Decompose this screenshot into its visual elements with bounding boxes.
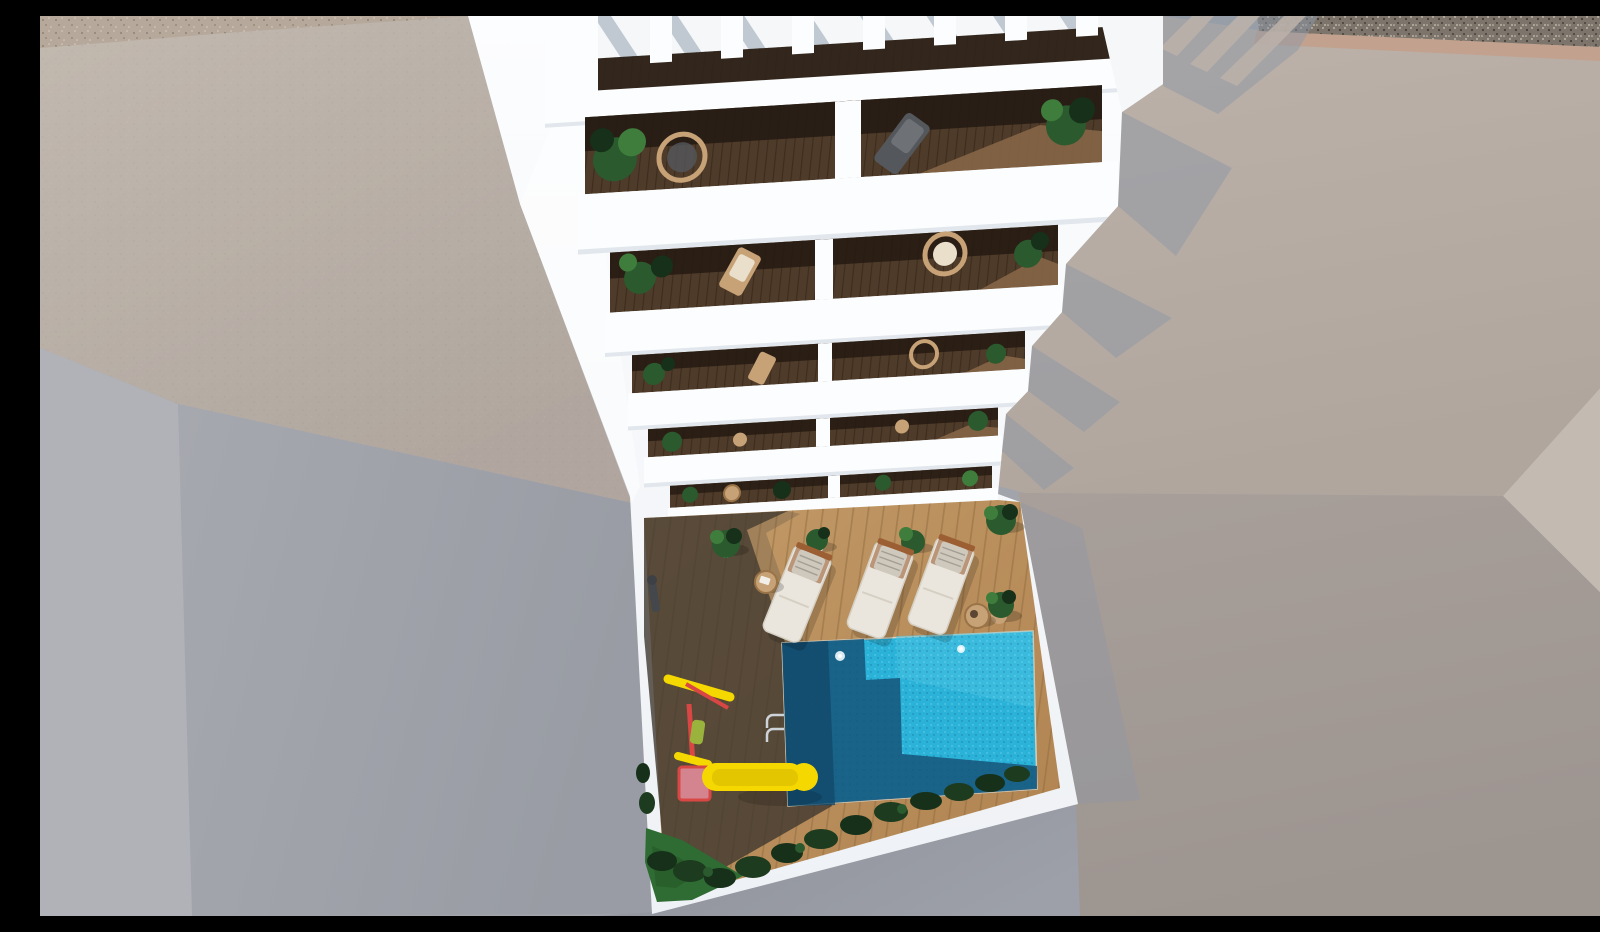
rattan-table bbox=[724, 485, 740, 502]
balcony-divider bbox=[815, 239, 833, 300]
pergola-frame-left bbox=[545, 16, 598, 96]
neighbor-wall-left bbox=[40, 348, 198, 916]
balcony-divider bbox=[818, 343, 832, 382]
slide-channel bbox=[712, 769, 798, 786]
water-glint-core bbox=[838, 654, 842, 658]
render-canvas: Aerial 3D architectural render of a whit… bbox=[40, 16, 1600, 916]
balcony-divider bbox=[828, 475, 840, 498]
render-scene: Top-down render: white residential build… bbox=[40, 16, 1600, 916]
balcony-divider bbox=[816, 418, 830, 447]
water-glint-core bbox=[959, 647, 962, 650]
balcony-divider bbox=[835, 100, 861, 179]
